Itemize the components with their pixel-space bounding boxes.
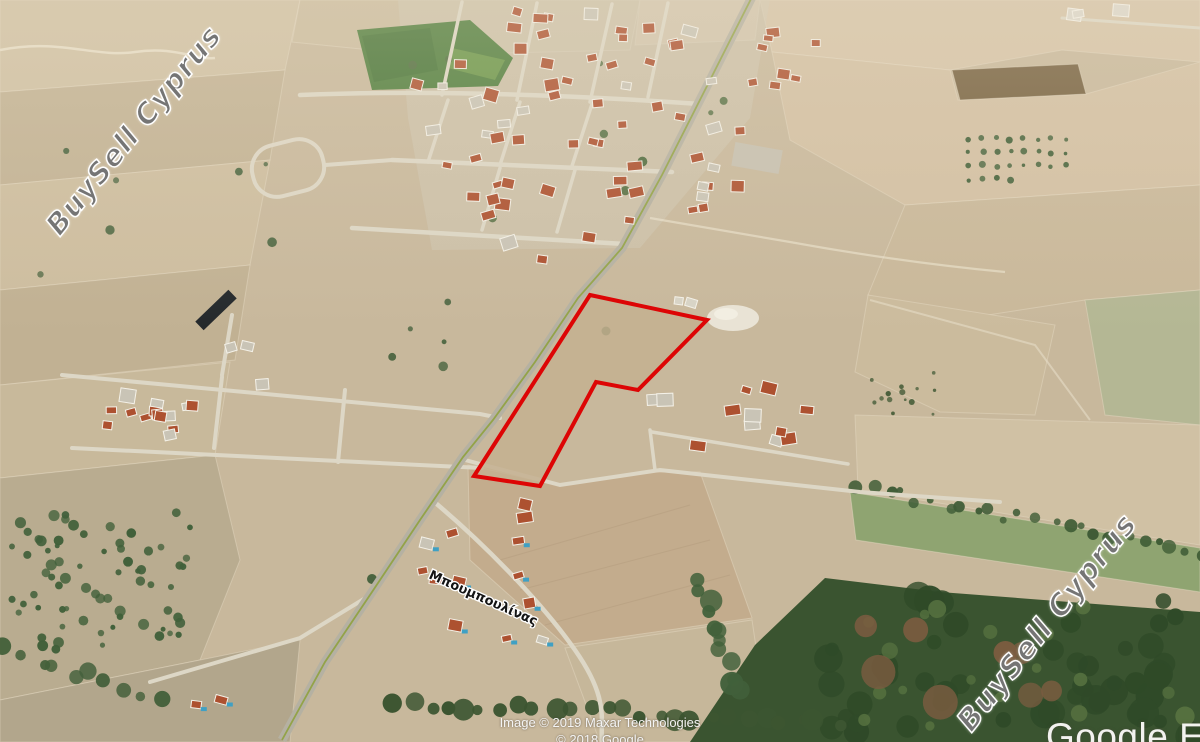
google-copyright: © 2018 Google [0, 732, 1200, 742]
terrain-canvas: Μπουμπουλίνας [0, 0, 1200, 742]
satellite-map-view[interactable]: Μπουμπουλίνας BuySell Cyprus BuySell Cyp… [0, 0, 1200, 742]
google-earth-logo: Google Earth [1046, 716, 1200, 742]
imagery-attribution: Image © 2019 Maxar Technologies [0, 715, 1200, 730]
